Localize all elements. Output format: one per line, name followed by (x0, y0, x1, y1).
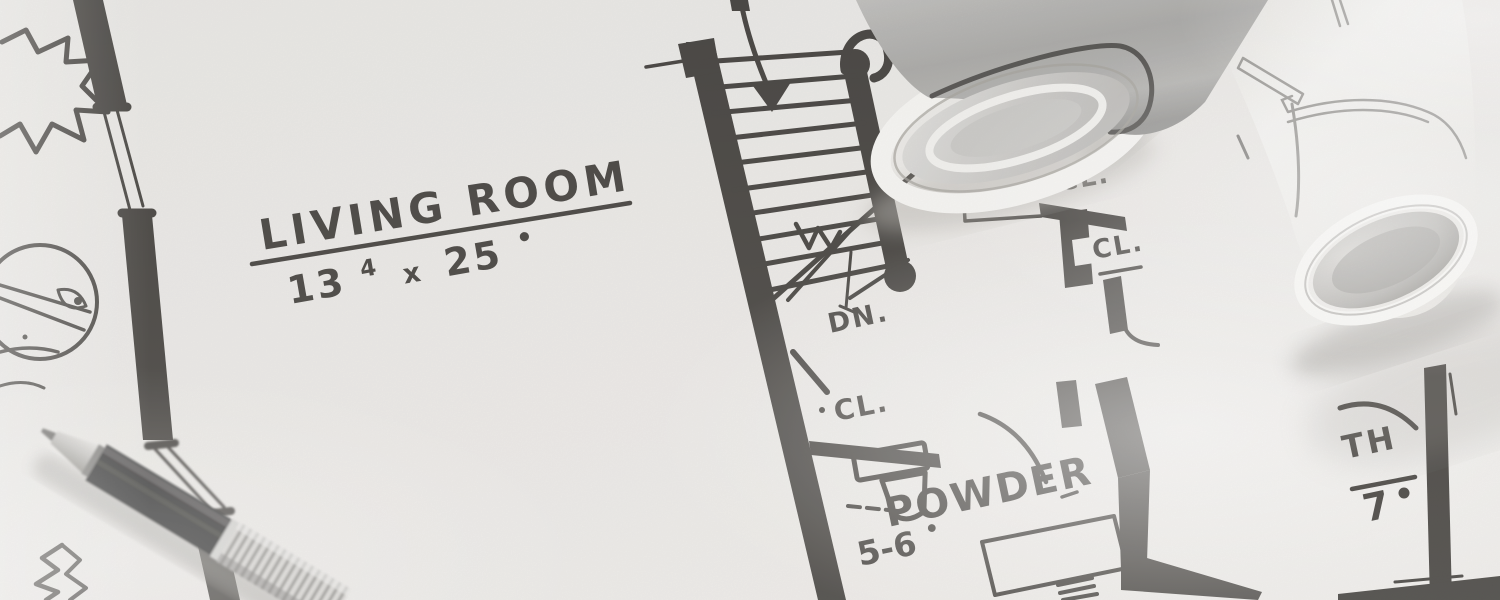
film-grain (0, 0, 1500, 600)
lighting-overlays (0, 0, 1500, 600)
blueprint-scene: LIVING ROOM 13 4 x 25 • (0, 0, 1500, 600)
blueprint-photo: LIVING ROOM 13 4 x 25 • (0, 0, 1500, 600)
